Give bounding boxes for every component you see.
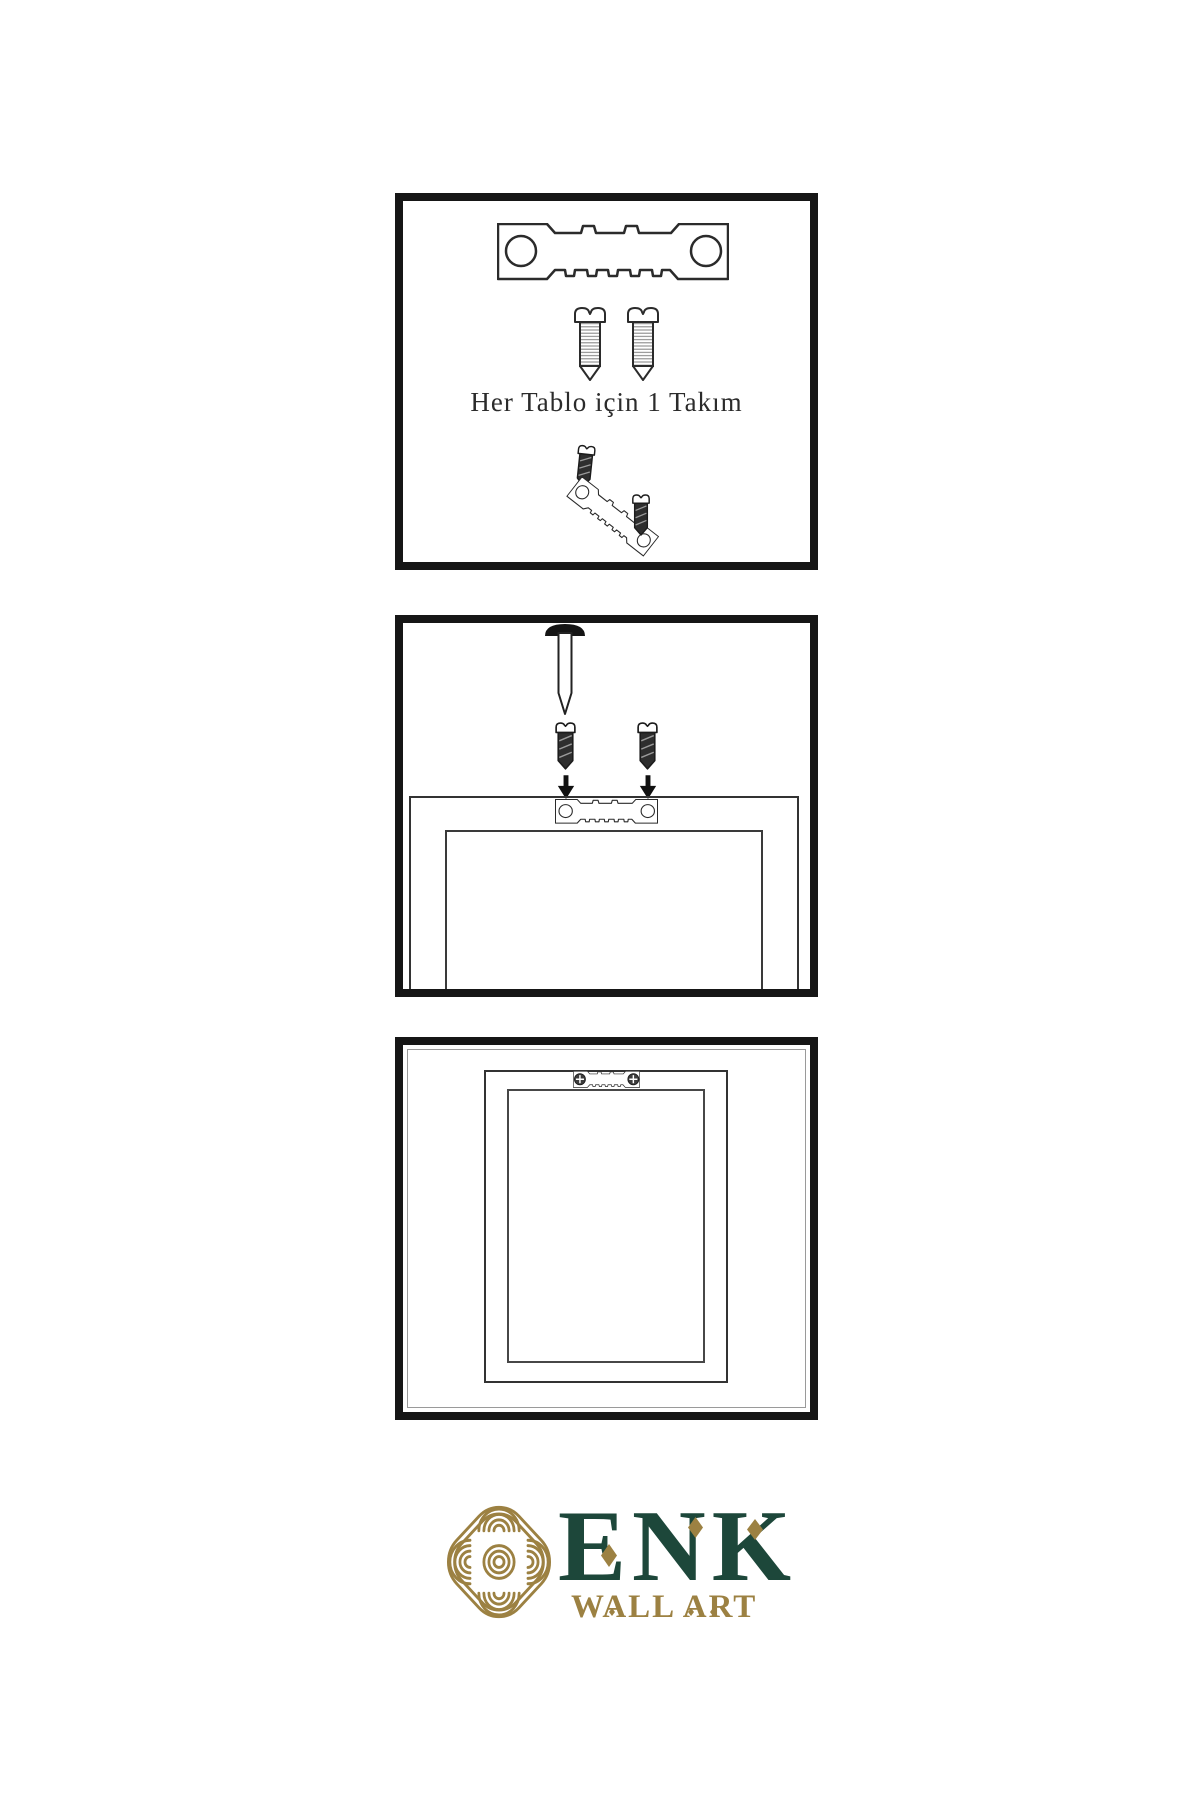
panel-hardware-kit: Her Tablo için 1 Takım [395,193,818,570]
brand-tagline: WALL ART [571,1589,757,1626]
screw-icon [625,306,661,383]
sawtooth-hanger-with-screws-icon [573,1071,640,1088]
diamond-accent-icon [688,1517,703,1538]
wall-nail-icon [543,623,587,718]
diamond-accent-icon [747,1519,763,1540]
diamond-dot-icon [609,1608,615,1616]
sawtooth-hanger-icon [497,223,729,281]
frame-back-inner-edge [445,830,763,989]
instruction-sheet: Her Tablo için 1 Takım [0,0,1200,1800]
diamond-dot-icon [710,1608,716,1616]
brand-name: ENK [558,1496,797,1598]
sawtooth-hanger-mounted-icon [555,799,658,824]
panel-installation-step [395,615,818,997]
dark-screw-icon [636,721,659,771]
kit-caption: Her Tablo için 1 Takım [403,387,810,418]
dark-screw-icon [554,721,577,771]
diamond-accent-icon [601,1544,617,1567]
frame-inner-edge [507,1089,705,1363]
panel-hung-frame-step [395,1037,818,1420]
diamond-dot-icon [688,1608,694,1616]
celtic-knot-logo-icon [436,1494,562,1630]
dark-screw-icon [631,493,651,537]
screw-icon [572,306,608,383]
